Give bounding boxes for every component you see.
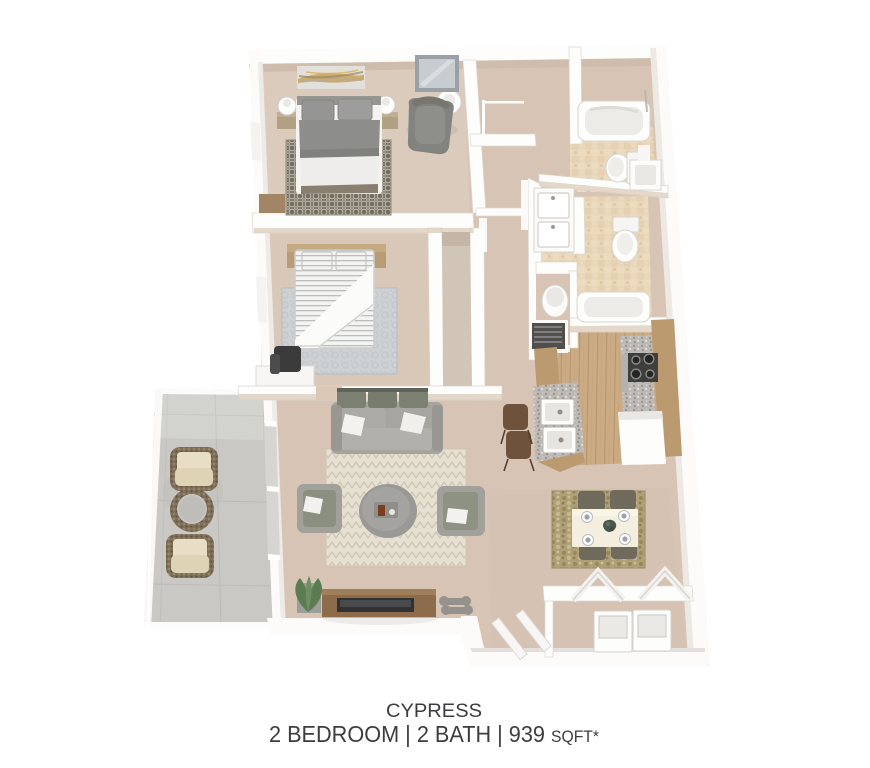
- svg-text:CYPRESS: CYPRESS: [386, 700, 482, 722]
- svg-text:SQFT*: SQFT*: [551, 727, 599, 746]
- svg-text:2 BEDROOM | 2 BATH | 939: 2 BEDROOM | 2 BATH | 939: [269, 721, 545, 747]
